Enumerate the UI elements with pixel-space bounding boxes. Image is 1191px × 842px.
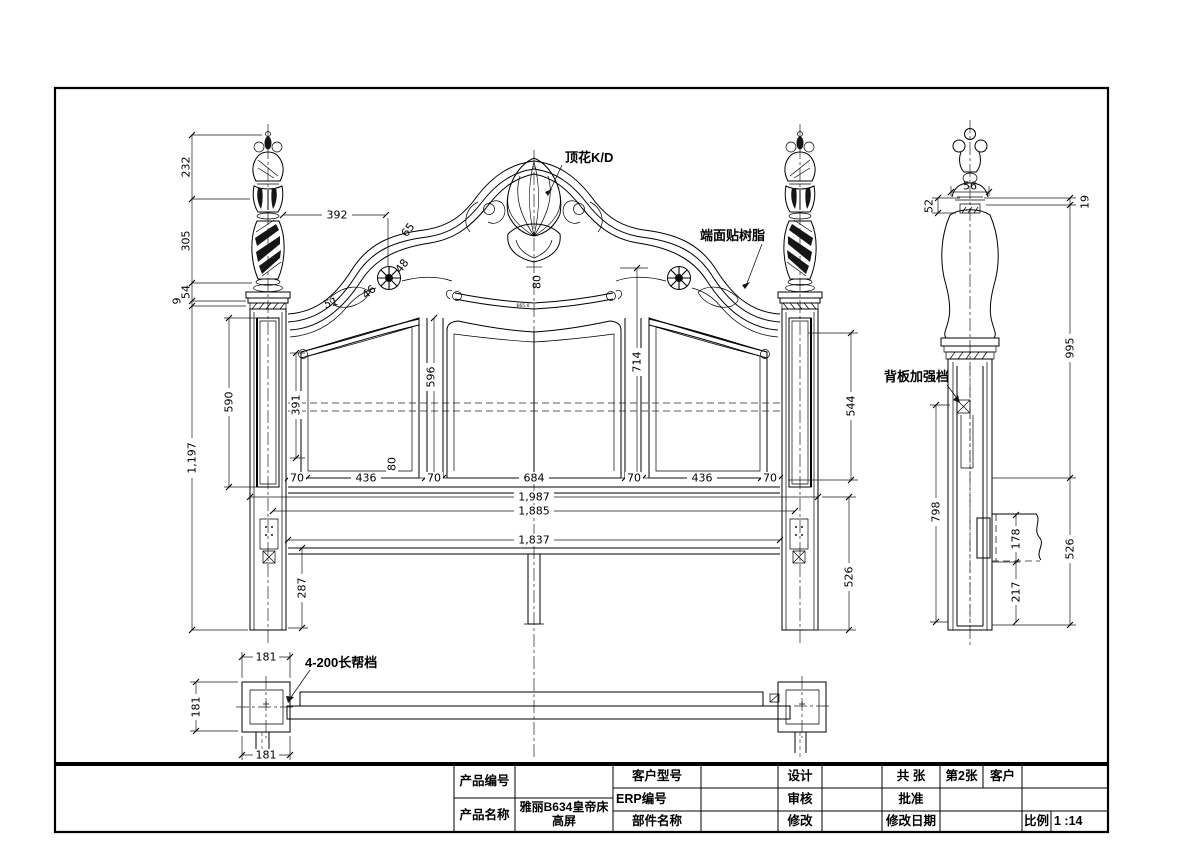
dim-596: 596 xyxy=(425,367,438,388)
dim-70a: 70 xyxy=(290,472,304,485)
long-rail-label: 4-200长帮档 xyxy=(305,655,377,670)
callouts: 顶花K/D 端面贴树脂 背板加强档 4-200长帮档 xyxy=(286,150,960,703)
dim-181-bottom: 181 xyxy=(256,749,277,762)
dim-1837: 1,837 xyxy=(518,534,550,547)
customer-label: 客户 xyxy=(983,765,1022,788)
dim-232: 232 xyxy=(180,157,193,178)
dim-544: 544 xyxy=(845,396,858,417)
dim-65: 65 xyxy=(399,220,418,239)
side-view xyxy=(941,120,1041,648)
dim-391: 391 xyxy=(290,395,303,416)
dim-178: 178 xyxy=(1010,529,1023,550)
dim-526-front: 526 xyxy=(843,567,856,588)
drawing-sheet: 232 305 54 9 1,197 392 65 48 46 51 80 66… xyxy=(0,0,1191,842)
dim-995: 995 xyxy=(1064,338,1077,359)
dim-287: 287 xyxy=(296,578,309,599)
dim-51: 51 xyxy=(323,295,340,311)
dim-52: 52 xyxy=(923,199,936,213)
dim-1197: 1,197 xyxy=(186,442,199,474)
dim-684: 684 xyxy=(524,472,545,485)
design-label: 设计 xyxy=(778,765,822,788)
dim-1987: 1,987 xyxy=(518,491,550,504)
approve-label: 批准 xyxy=(882,788,940,811)
sheet-border xyxy=(55,88,1108,832)
dim-798: 798 xyxy=(930,502,943,523)
dim-305: 305 xyxy=(180,231,193,252)
scale-label: 比例 xyxy=(1022,811,1051,832)
dim-392: 392 xyxy=(327,209,348,222)
dim-436b: 436 xyxy=(692,472,713,485)
product-name-value: 雅丽B634皇帝床高屏 xyxy=(515,798,613,832)
audit-label: 审核 xyxy=(778,788,822,811)
top-flower-label: 顶花K/D xyxy=(565,150,613,165)
dim-714: 714 xyxy=(631,352,644,373)
dim-70d: 70 xyxy=(763,472,777,485)
dim-70c: 70 xyxy=(627,472,641,485)
back-reinforce-label: 背板加强档 xyxy=(884,369,949,384)
dim-80-crest: 80 xyxy=(531,275,544,289)
part-name-label: 部件名称 xyxy=(613,811,701,832)
dim-590: 590 xyxy=(223,392,236,413)
dim-9: 9 xyxy=(171,298,184,305)
dim-19: 19 xyxy=(1079,195,1092,209)
dim-217: 217 xyxy=(1010,582,1023,603)
dim-70b: 70 xyxy=(427,472,441,485)
product-no-label: 产品编号 xyxy=(454,765,515,798)
dim-181-left: 181 xyxy=(190,697,203,718)
dim-1885: 1,885 xyxy=(518,505,550,518)
dim-54: 54 xyxy=(180,285,193,299)
dim-46: 46 xyxy=(359,283,378,302)
dim-56: 56 xyxy=(963,180,977,193)
erp-no-label: ERP编号 xyxy=(613,788,704,811)
dim-436a: 436 xyxy=(356,472,377,485)
dim-48: 48 xyxy=(393,256,412,275)
dim-center-mark: 665.0 xyxy=(517,303,530,309)
dim-526-side: 526 xyxy=(1064,539,1077,560)
end-face-resin-label: 端面贴树脂 xyxy=(700,228,765,243)
modify-label: 修改 xyxy=(778,811,822,832)
cad-drawing: 232 305 54 9 1,197 392 65 48 46 51 80 66… xyxy=(0,0,1191,842)
scale-value: 1 :14 xyxy=(1051,811,1111,832)
product-name-label: 产品名称 xyxy=(454,798,515,832)
sheet-no: 第2张 xyxy=(940,765,983,788)
customer-model-label: 客户型号 xyxy=(613,765,701,788)
dim-80b: 80 xyxy=(386,457,399,471)
dim-181-top: 181 xyxy=(256,651,277,664)
total-sheet-label: 共 张 xyxy=(882,765,940,788)
modify-date-label: 修改日期 xyxy=(882,811,940,832)
